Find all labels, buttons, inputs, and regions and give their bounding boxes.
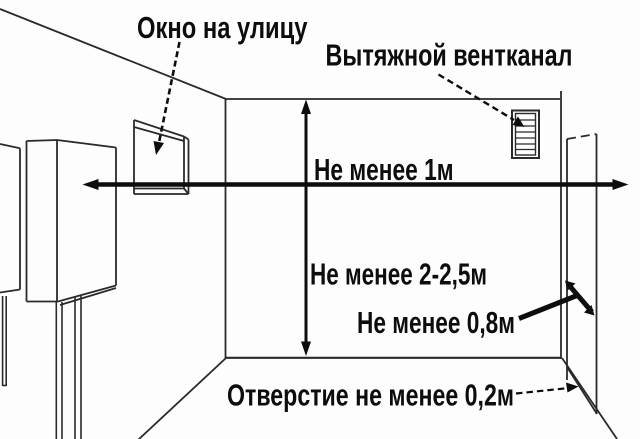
svg-text:Не менее 2-2,5м: Не менее 2-2,5м xyxy=(310,257,487,292)
svg-text:Вытяжной вентканал: Вытяжной вентканал xyxy=(326,38,573,73)
svg-text:Не менее 0,8м: Не менее 0,8м xyxy=(357,305,515,340)
svg-text:Не менее 1м: Не менее 1м xyxy=(314,152,454,187)
svg-text:Отверстие не менее 0,2м: Отверстие не менее 0,2м xyxy=(227,378,514,413)
svg-text:Окно на улицу: Окно на улицу xyxy=(137,10,308,45)
